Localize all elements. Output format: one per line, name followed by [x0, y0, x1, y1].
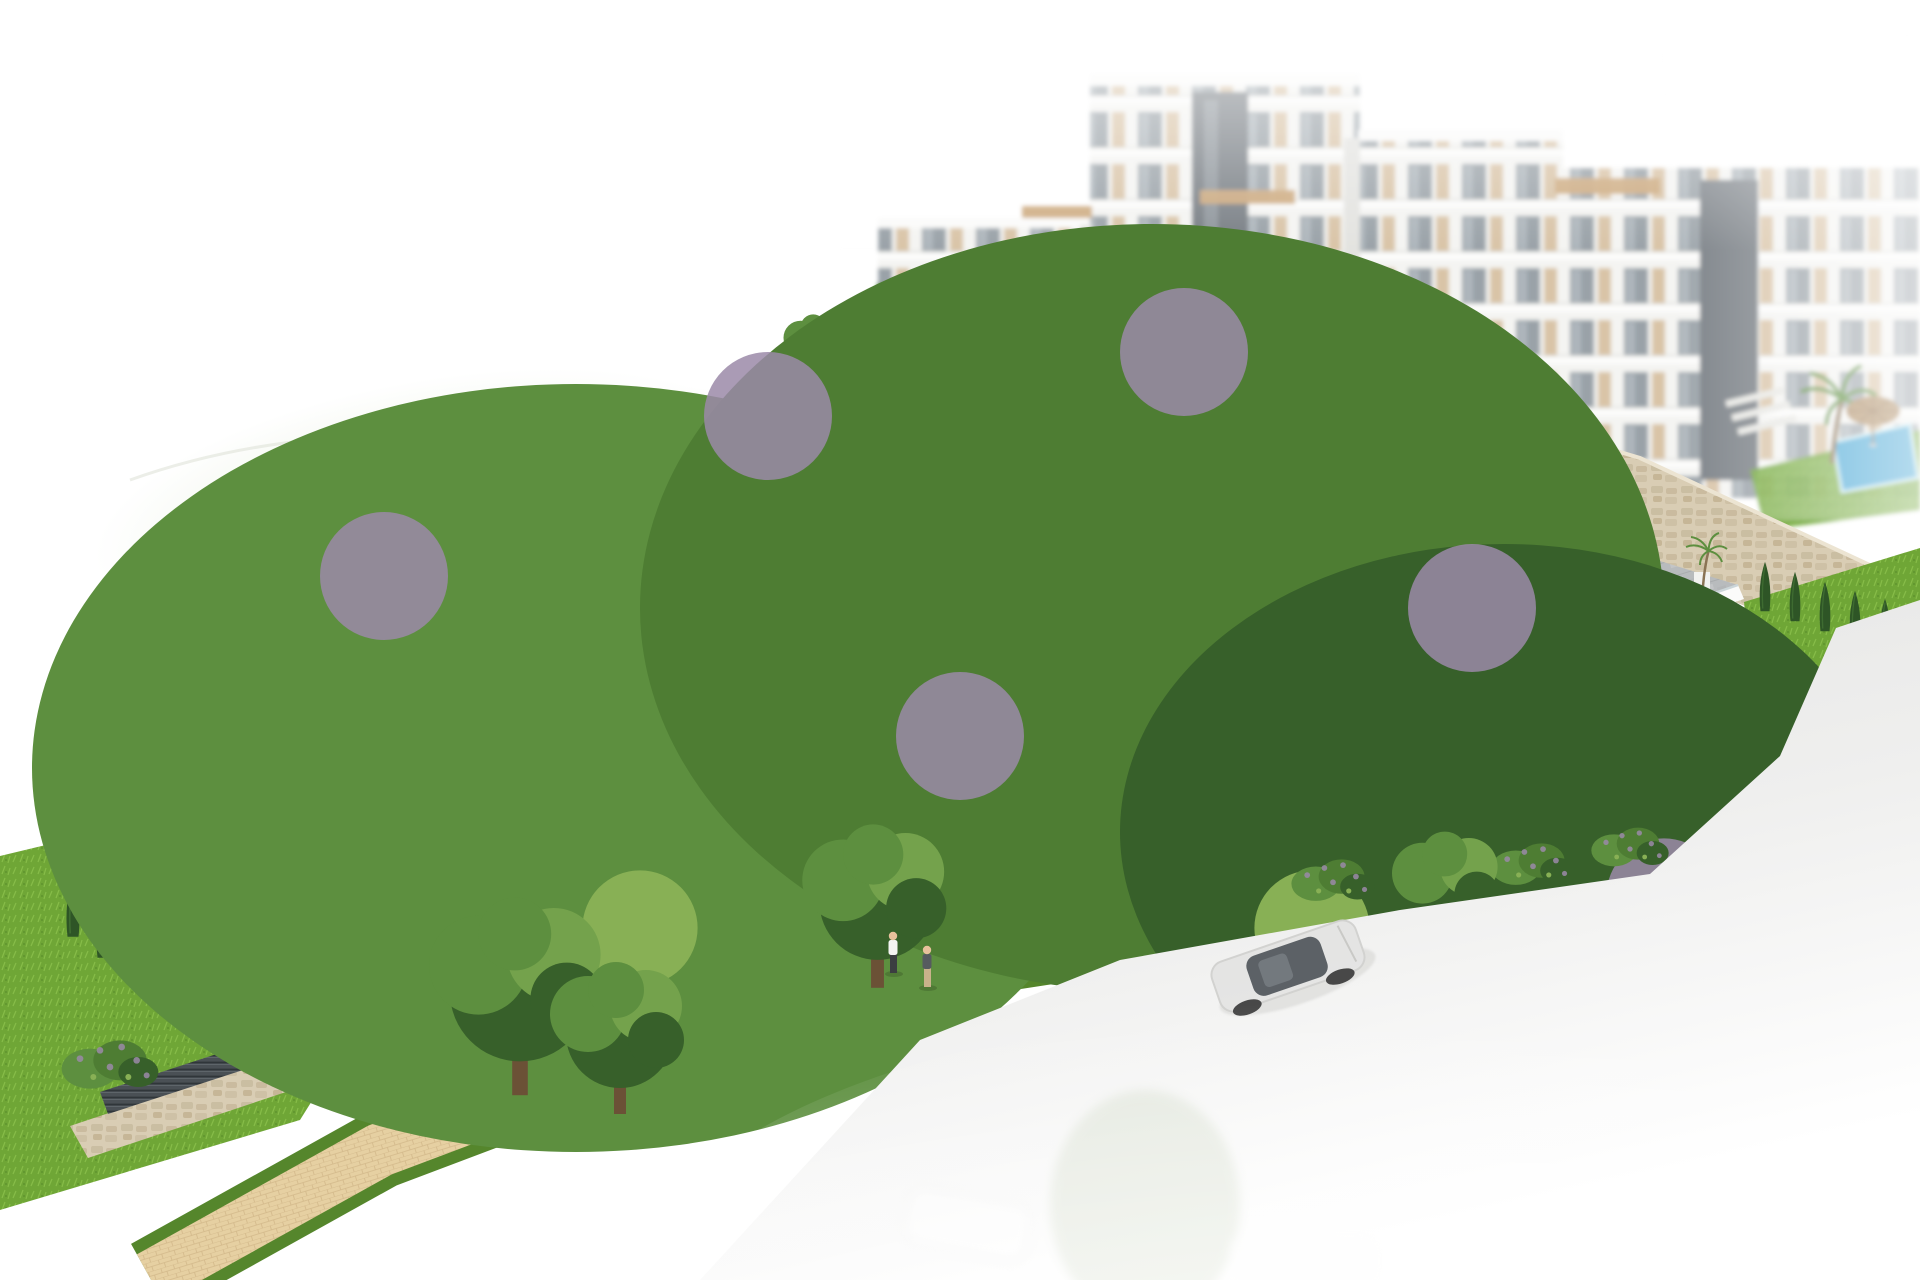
- architectural-render: Aerial 3D architectural rendering — hill…: [0, 0, 1920, 1280]
- architectural-render-page: Computer-generated aerial view of a new-…: [0, 0, 1920, 1280]
